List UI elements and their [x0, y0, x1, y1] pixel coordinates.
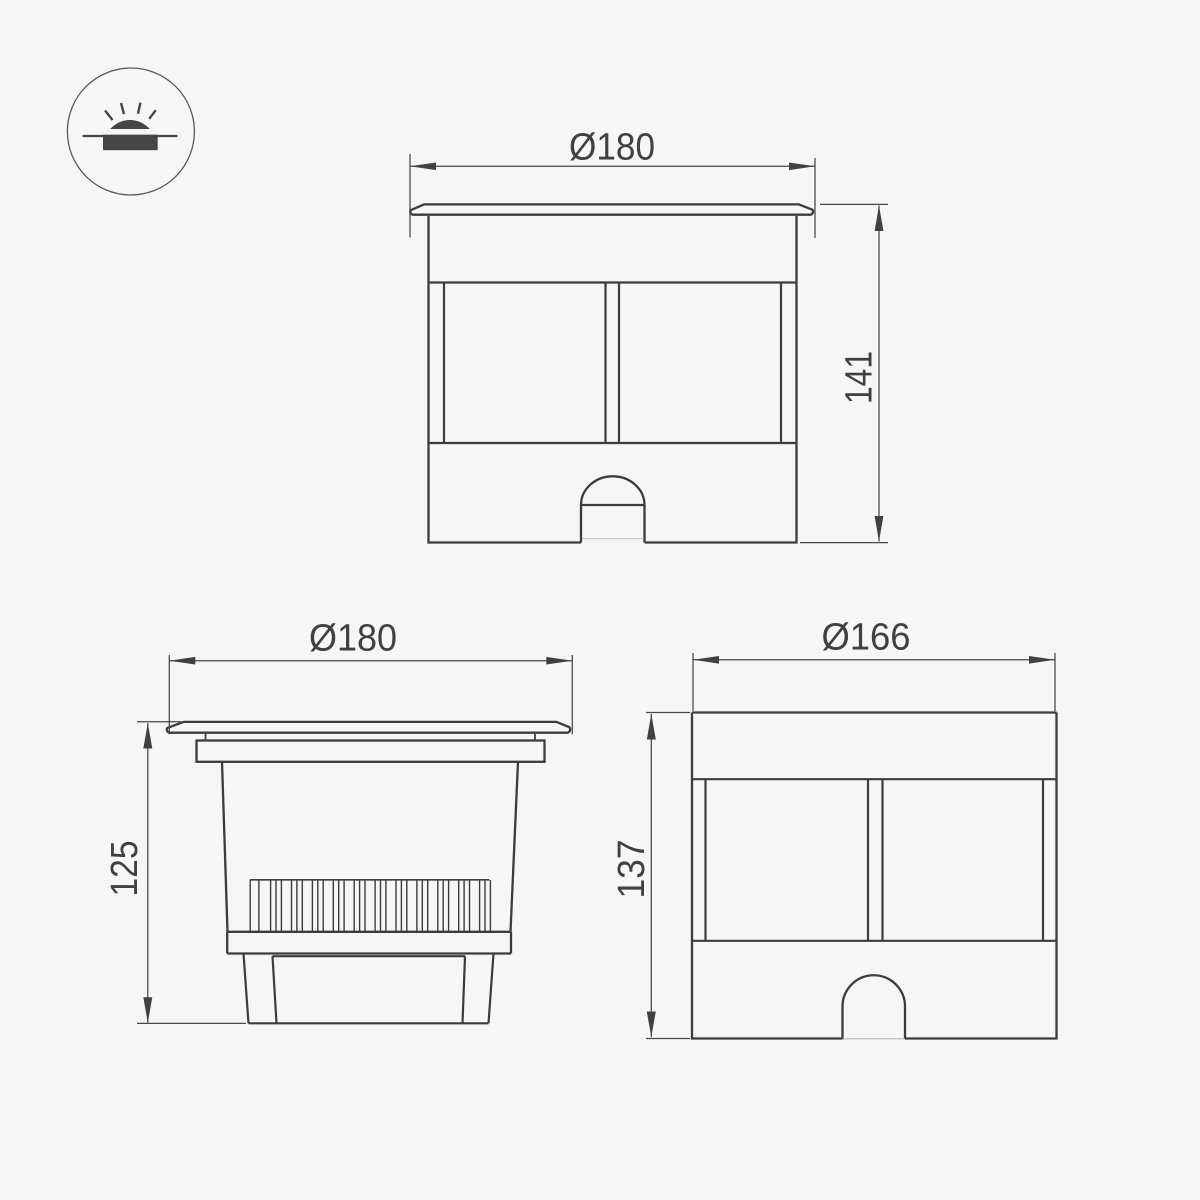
svg-text:125: 125	[104, 841, 146, 897]
svg-text:Ø166: Ø166	[822, 616, 911, 658]
svg-text:141: 141	[839, 351, 881, 404]
svg-text:Ø180: Ø180	[309, 618, 397, 660]
svg-text:137: 137	[611, 840, 653, 899]
svg-text:Ø180: Ø180	[569, 127, 655, 169]
